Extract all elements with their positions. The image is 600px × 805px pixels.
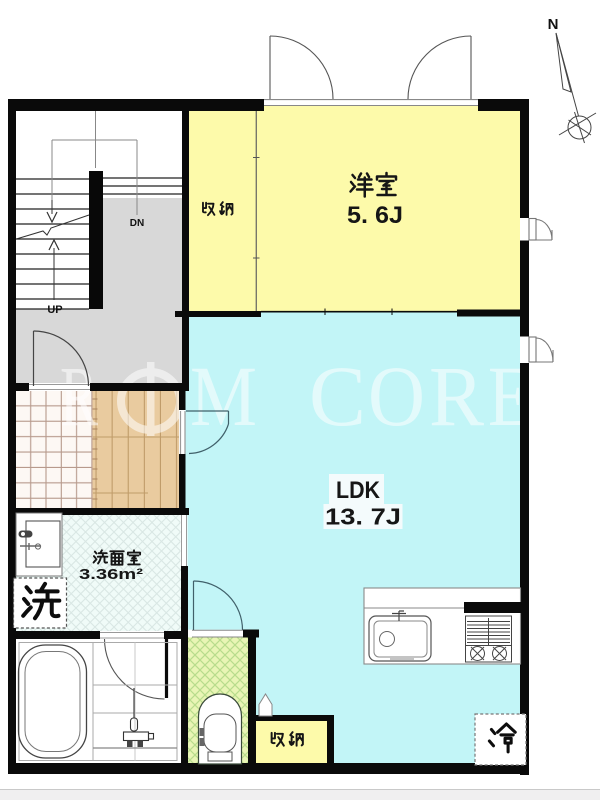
svg-text:R: R xyxy=(60,348,98,444)
svg-text:UP: UP xyxy=(47,304,62,316)
svg-text:R: R xyxy=(429,348,485,444)
svg-text:M: M xyxy=(190,348,257,444)
svg-text:LDK: LDK xyxy=(336,477,381,504)
svg-text:N: N xyxy=(548,16,559,33)
svg-text:DN: DN xyxy=(130,218,144,229)
svg-text:13. 7J: 13. 7J xyxy=(325,504,401,530)
svg-text:5. 6J: 5. 6J xyxy=(347,202,403,229)
svg-text:3.36m²: 3.36m² xyxy=(79,566,143,583)
svg-text:C: C xyxy=(309,348,366,444)
svg-text:O: O xyxy=(368,348,425,444)
